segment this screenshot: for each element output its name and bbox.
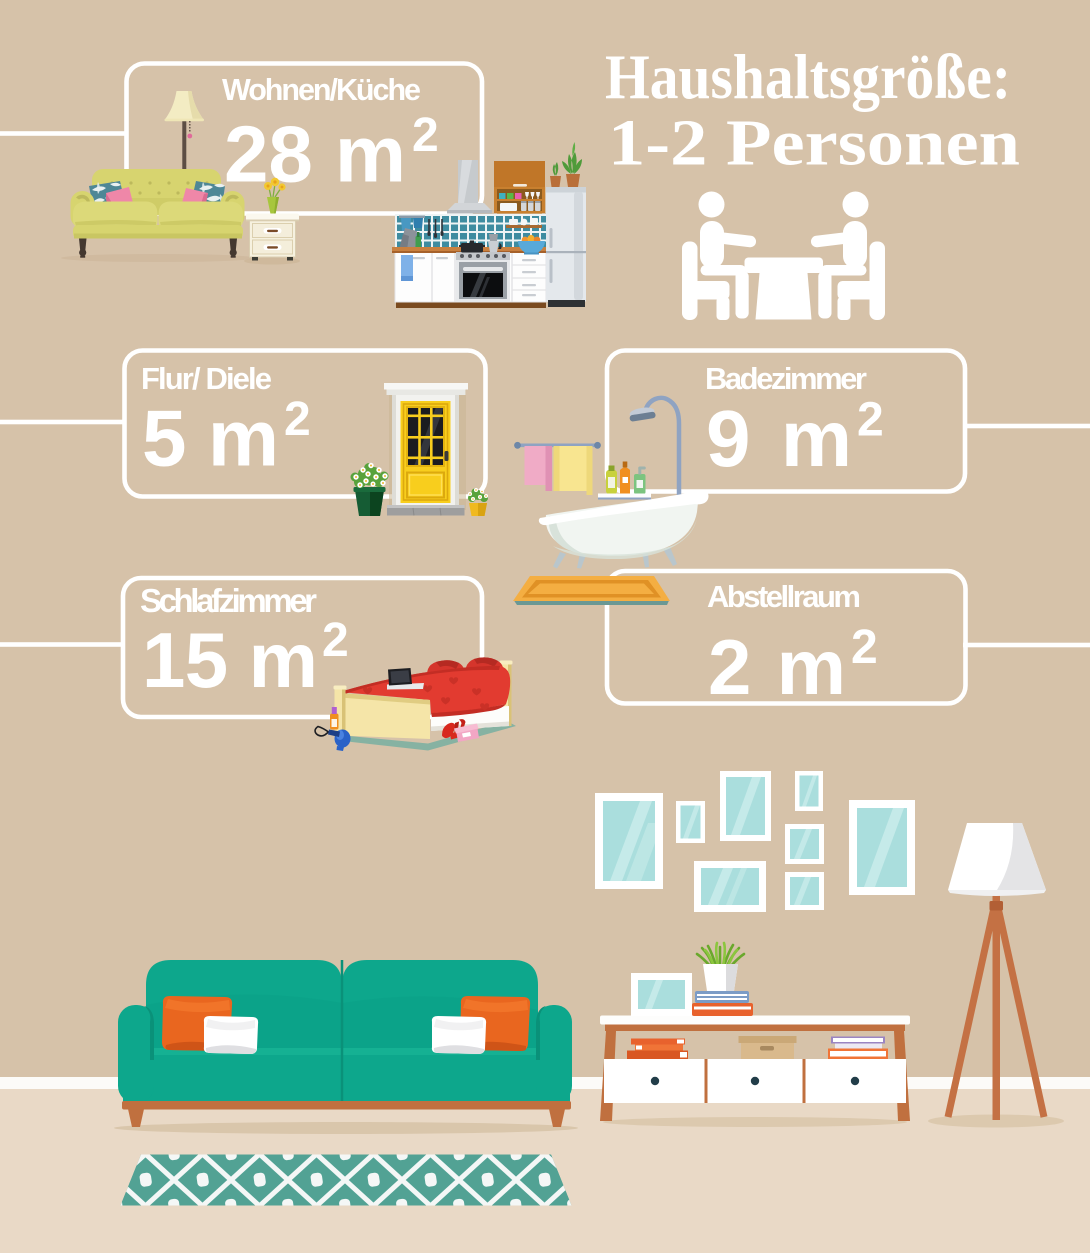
svg-text:2: 2 xyxy=(851,621,878,674)
svg-text:28 m: 28 m xyxy=(224,110,406,199)
svg-text:2: 2 xyxy=(284,393,311,446)
svg-text:1-2 Personen: 1-2 Personen xyxy=(608,107,1020,180)
svg-text:2: 2 xyxy=(322,614,349,667)
svg-text:Haushaltsgröße:: Haushaltsgröße: xyxy=(605,42,1011,112)
svg-text:Flur/ Diele: Flur/ Diele xyxy=(141,361,272,396)
svg-text:Schlafzimmer: Schlafzimmer xyxy=(140,582,317,619)
svg-text:5 m: 5 m xyxy=(142,394,279,483)
svg-text:2: 2 xyxy=(412,109,439,162)
svg-text:Wohnen/Küche: Wohnen/Küche xyxy=(222,73,421,107)
svg-text:Badezimmer: Badezimmer xyxy=(705,361,867,396)
svg-text:2 m: 2 m xyxy=(708,623,846,711)
svg-text:15 m: 15 m xyxy=(142,616,318,704)
svg-text:2: 2 xyxy=(857,394,884,447)
svg-text:Abstellraum: Abstellraum xyxy=(707,579,861,614)
